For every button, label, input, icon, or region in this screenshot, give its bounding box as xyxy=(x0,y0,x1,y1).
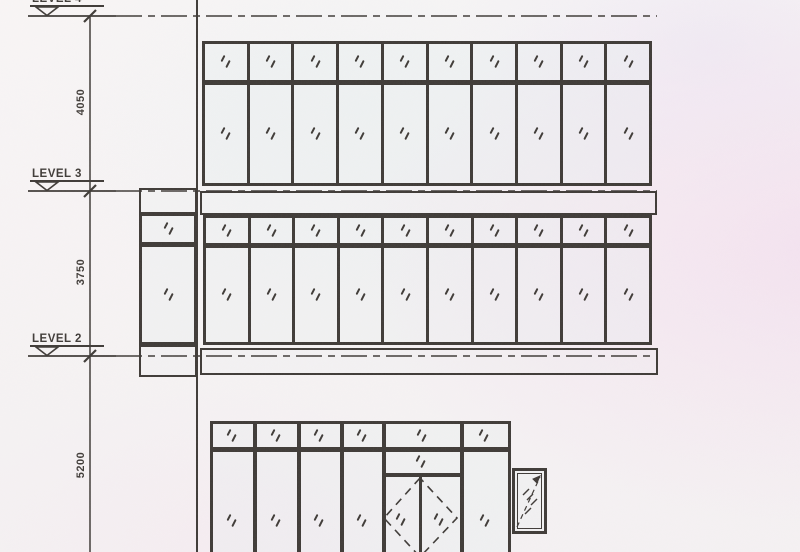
glass-symbol xyxy=(531,224,546,238)
left-return-top-spandrel xyxy=(139,188,197,214)
level3-spandrel xyxy=(200,191,657,215)
window-pane xyxy=(474,218,519,243)
glass-symbol xyxy=(442,288,457,302)
glass-symbol xyxy=(311,514,326,528)
glass-symbol xyxy=(413,455,428,469)
glass-symbol xyxy=(487,127,502,141)
glass-symbol xyxy=(393,513,408,527)
scanned-elevation-sheet: LEVEL 4LEVEL 3LEVEL 2405037505200 xyxy=(0,0,800,552)
window-pane xyxy=(607,44,649,80)
glass-symbol xyxy=(224,429,239,443)
window-pane xyxy=(250,44,295,80)
glass-symbol xyxy=(576,288,591,302)
glass-symbol xyxy=(264,224,279,238)
glass-symbol xyxy=(487,224,502,238)
window-pane xyxy=(563,44,608,80)
glass-symbol xyxy=(398,224,413,238)
level-label: LEVEL 2 xyxy=(30,332,104,347)
glass-symbol xyxy=(621,224,636,238)
window-pane xyxy=(251,248,296,342)
window-pane xyxy=(518,218,563,243)
glass-symbol xyxy=(442,55,457,69)
window-pane xyxy=(142,216,194,242)
glass-symbol xyxy=(576,55,591,69)
glass-symbol xyxy=(311,429,326,443)
storefront-transom-rail xyxy=(213,447,508,452)
window-pane xyxy=(295,218,340,243)
window-pane xyxy=(294,85,339,183)
upper-window-band xyxy=(202,41,652,186)
door-center-stile xyxy=(419,477,422,552)
window-pane xyxy=(607,248,649,342)
window-pane xyxy=(429,248,474,342)
window-pane xyxy=(518,248,563,342)
level-label: LEVEL 3 xyxy=(30,167,104,182)
window-pane xyxy=(607,218,649,243)
window-pane xyxy=(142,247,194,342)
upper-window-band-transom-row xyxy=(205,44,649,85)
level-label: LEVEL 4 xyxy=(30,0,104,7)
window-pane xyxy=(429,44,474,80)
storefront-mullion xyxy=(382,424,386,552)
glass-symbol xyxy=(442,224,457,238)
dimension-text: 3750 xyxy=(75,250,87,294)
left-return-bottom-spandrel xyxy=(139,345,197,377)
window-pane xyxy=(205,44,250,80)
window-pane xyxy=(340,218,385,243)
window-pane xyxy=(473,44,518,80)
glass-symbol xyxy=(268,429,283,443)
glass-symbol xyxy=(354,429,369,443)
glass-symbol xyxy=(621,288,636,302)
glass-symbol xyxy=(414,429,429,443)
glass-symbol xyxy=(308,288,323,302)
storefront-mullion xyxy=(253,424,257,552)
glass-symbol xyxy=(531,288,546,302)
glass-symbol xyxy=(576,224,591,238)
glass-symbol xyxy=(353,288,368,302)
glass-symbol xyxy=(397,55,412,69)
dimension-text: 4050 xyxy=(75,80,87,124)
glass-symbol xyxy=(354,514,369,528)
window-pane xyxy=(206,248,251,342)
window-pane xyxy=(429,218,474,243)
window-pane xyxy=(607,85,649,183)
glass-symbol xyxy=(268,514,283,528)
small-window-inner-frame xyxy=(517,473,542,529)
glass-symbol xyxy=(352,55,367,69)
glass-symbol xyxy=(224,514,239,528)
window-pane xyxy=(518,44,563,80)
glass-symbol xyxy=(219,224,234,238)
storefront-mullion xyxy=(297,424,301,552)
glass-symbol xyxy=(308,55,323,69)
glass-symbol xyxy=(431,513,446,527)
glass-symbol xyxy=(531,127,546,141)
middle-window-band-main-row xyxy=(206,248,649,342)
window-pane xyxy=(384,85,429,183)
window-pane xyxy=(563,218,608,243)
middle-band-left-return-main-row xyxy=(142,247,194,342)
window-pane xyxy=(429,85,474,183)
glass-symbol xyxy=(218,127,233,141)
window-pane xyxy=(384,218,429,243)
glass-symbol xyxy=(442,127,457,141)
glass-symbol xyxy=(308,224,323,238)
dimension-text: 5200 xyxy=(75,443,87,487)
storefront-mullion xyxy=(460,424,464,552)
window-pane xyxy=(339,85,384,183)
window-pane xyxy=(474,248,519,342)
small-window xyxy=(512,468,547,534)
facade-layer: LEVEL 4LEVEL 3LEVEL 2405037505200 xyxy=(0,0,800,552)
glass-symbol xyxy=(161,222,176,236)
glass-symbol xyxy=(531,55,546,69)
glass-symbol xyxy=(308,127,323,141)
glass-symbol xyxy=(263,55,278,69)
glass-symbol xyxy=(487,55,502,69)
glass-symbol xyxy=(398,288,413,302)
glass-symbol xyxy=(397,127,412,141)
window-pane xyxy=(250,85,295,183)
window-pane xyxy=(384,44,429,80)
glass-symbol xyxy=(161,288,176,302)
middle-window-band xyxy=(203,215,652,345)
window-pane xyxy=(339,44,384,80)
middle-band-left-return-transom-row xyxy=(142,216,194,247)
window-pane xyxy=(295,248,340,342)
glass-symbol xyxy=(487,288,502,302)
window-pane xyxy=(384,248,429,342)
glass-symbol xyxy=(352,127,367,141)
glass-symbol xyxy=(476,429,491,443)
storefront xyxy=(210,421,511,552)
glass-symbol xyxy=(477,514,492,528)
storefront-mullion xyxy=(340,424,344,552)
window-pane xyxy=(206,218,251,243)
window-pane xyxy=(251,218,296,243)
glass-symbol xyxy=(218,55,233,69)
glass-symbol xyxy=(353,224,368,238)
middle-window-band-transom-row xyxy=(206,218,649,248)
glass-symbol xyxy=(264,288,279,302)
glass-symbol xyxy=(621,55,636,69)
window-pane xyxy=(518,85,563,183)
glass-symbol xyxy=(576,127,591,141)
glass-symbol xyxy=(219,288,234,302)
upper-window-band-main-row xyxy=(205,85,649,183)
window-pane xyxy=(563,248,608,342)
window-pane xyxy=(563,85,608,183)
glass-symbol xyxy=(621,127,636,141)
window-pane xyxy=(473,85,518,183)
glass-symbol xyxy=(263,127,278,141)
window-pane xyxy=(340,248,385,342)
window-pane xyxy=(205,85,250,183)
level2-spandrel xyxy=(200,348,658,375)
middle-band-left-return xyxy=(139,213,197,345)
window-pane xyxy=(294,44,339,80)
